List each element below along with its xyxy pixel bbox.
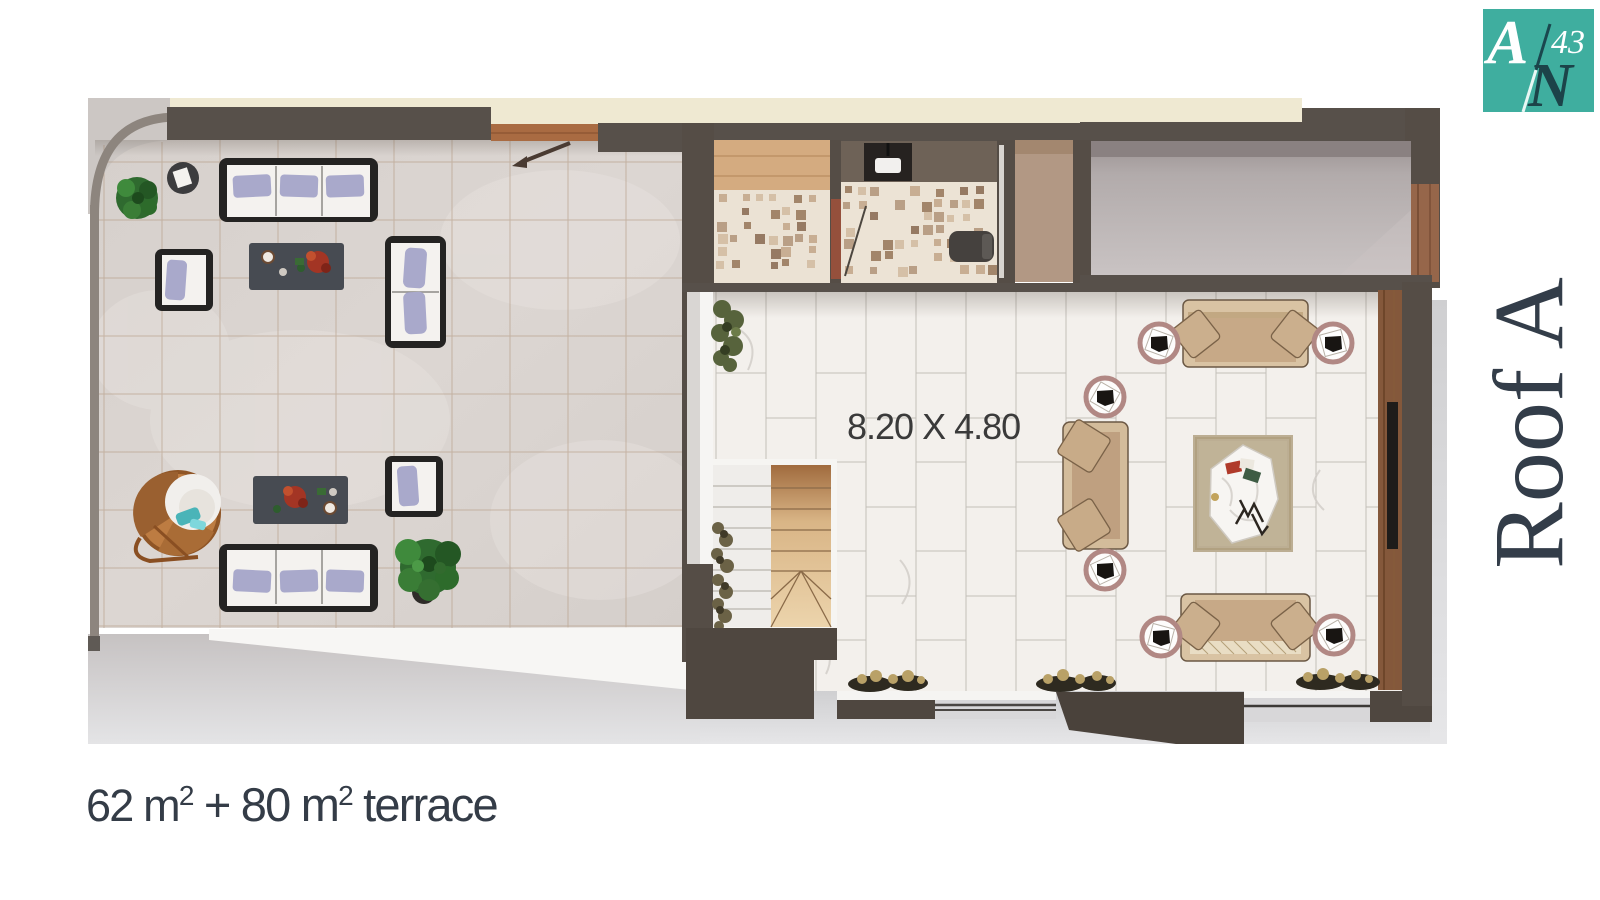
svg-text:A: A: [1483, 9, 1528, 77]
svg-text:N: N: [1527, 52, 1575, 120]
svg-text:62 m2 + 80 m2 terrace: 62 m2 + 80 m2 terrace: [86, 778, 497, 831]
svg-text:8.20 X 4.80: 8.20 X 4.80: [847, 406, 1020, 447]
svg-text:Roof A: Roof A: [1473, 277, 1584, 569]
